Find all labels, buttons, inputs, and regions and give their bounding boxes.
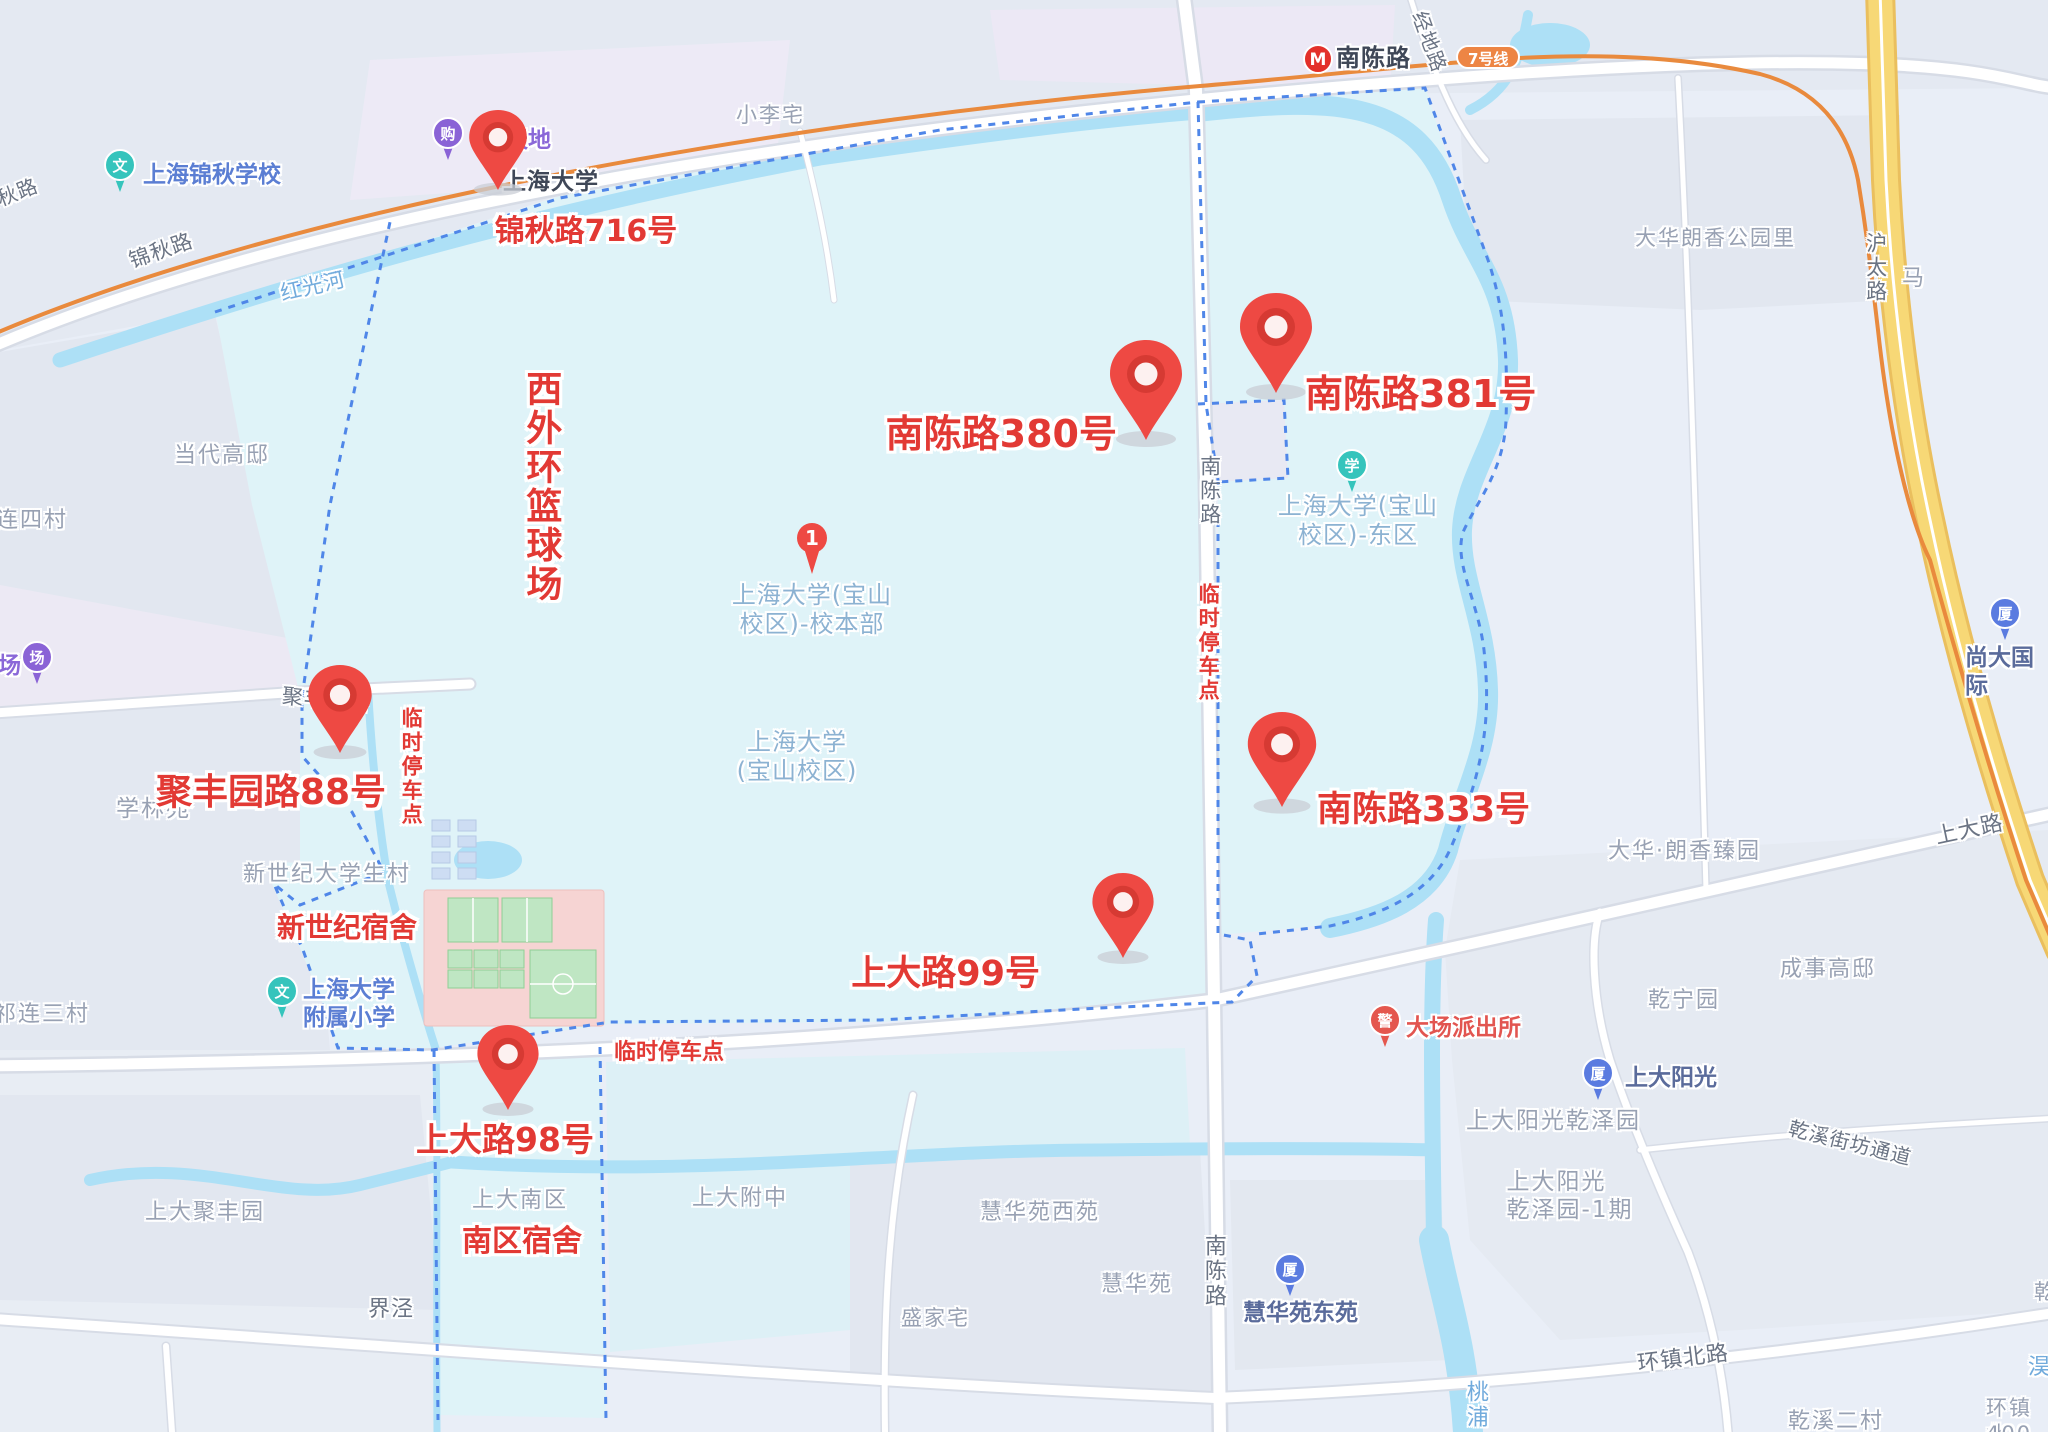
campus-east-icon[interactable]: 学 bbox=[1334, 448, 1370, 498]
map-label: 当代高邸 bbox=[174, 443, 270, 470]
police-icon[interactable]: 警 bbox=[1367, 1003, 1403, 1053]
map-label: 成事高邸 bbox=[1780, 957, 1876, 984]
svg-text:M: M bbox=[1310, 50, 1327, 70]
svg-text:场: 场 bbox=[29, 649, 44, 667]
svg-text:厦: 厦 bbox=[1997, 605, 2013, 623]
svg-text:警: 警 bbox=[1376, 1012, 1392, 1030]
sports-fields bbox=[424, 890, 604, 1026]
map-label: 盛家宅 bbox=[901, 1306, 970, 1332]
map-pin-icon[interactable] bbox=[466, 107, 530, 197]
map-label: 祁连四村 bbox=[0, 508, 68, 535]
map-label: 尚大国际 bbox=[1965, 644, 2048, 700]
metro-line-badge: 7号线 bbox=[1456, 45, 1520, 69]
svg-text:学: 学 bbox=[1344, 457, 1359, 475]
map-label: 上海大学(宝山 校区)-东区 bbox=[1278, 492, 1438, 551]
map-label: 上大阳光 bbox=[1625, 1064, 1717, 1092]
address-marker-label: 上大路98号 bbox=[416, 1113, 594, 1161]
map-label: 慧华苑东苑 bbox=[1243, 1299, 1358, 1327]
map-label: 上海大学 (宝山校区) bbox=[737, 728, 858, 787]
building-icon[interactable]: 厦 bbox=[1987, 596, 2023, 646]
map-label: 南陈路 bbox=[1196, 455, 1222, 527]
svg-text:厦: 厦 bbox=[1590, 1065, 1606, 1083]
map-label: 桃浦 bbox=[1461, 1380, 1488, 1430]
map-label: 上大聚丰园 bbox=[145, 1200, 265, 1227]
map-label: 上大阳光乾泽园 bbox=[1466, 1107, 1641, 1135]
map-label: 慧华苑 bbox=[1101, 1272, 1173, 1299]
school-icon[interactable]: 文 bbox=[264, 974, 300, 1024]
address-marker-label: 南陈路380号 bbox=[886, 403, 1117, 458]
map-label: 乾 bbox=[2034, 1280, 2048, 1306]
map-label: 界泾 bbox=[368, 1297, 414, 1324]
map-pin-icon[interactable] bbox=[474, 1022, 542, 1117]
map-pin-icon[interactable] bbox=[1244, 708, 1320, 814]
building-icon[interactable]: 厦 bbox=[1272, 1252, 1308, 1302]
map-label: 南陈路 bbox=[1199, 1234, 1226, 1309]
map-pin-icon[interactable] bbox=[305, 661, 375, 760]
map-label: 400弄 bbox=[1986, 1422, 2048, 1432]
map-label: 沪太路 bbox=[1862, 232, 1888, 304]
plaza-icon[interactable]: 场 bbox=[19, 640, 55, 690]
address-marker-label: 南陈路333号 bbox=[1317, 781, 1530, 832]
map-label: 马 bbox=[1902, 266, 1926, 293]
map-pin-icon[interactable] bbox=[1236, 289, 1316, 401]
red-annotation: 西外环篮球场 bbox=[520, 370, 561, 604]
metro-station-icon[interactable]: M bbox=[1302, 43, 1334, 79]
map-canvas[interactable]: 小李宅当代高邸祁连四村学林苑祁连三村新世纪大学生村上大南区上大附中上大聚丰园盛家… bbox=[0, 0, 2048, 1432]
map-label: 小李宅 bbox=[736, 103, 805, 129]
map-label: 祁连三村 bbox=[0, 1002, 90, 1029]
address-marker-label: 上大路99号 bbox=[851, 945, 1040, 996]
map-label: 南陈路 bbox=[1336, 44, 1411, 73]
map-label: 上大阳光 乾泽园-1期 bbox=[1507, 1168, 1634, 1224]
map-label: 大场派出所 bbox=[1406, 1014, 1521, 1042]
map-label: 上海大学 附属小学 bbox=[303, 976, 395, 1032]
map-pin-icon[interactable] bbox=[1089, 870, 1157, 965]
svg-text:购: 购 bbox=[440, 125, 455, 143]
map-label: 上大附中 bbox=[692, 1186, 788, 1213]
red-annotation: 新世纪宿舍 bbox=[277, 912, 417, 944]
red-annotation: 临时停车点 bbox=[399, 707, 423, 827]
map-label: 乾宁园 bbox=[1648, 988, 1720, 1015]
red-annotation: 临时停车点 bbox=[1196, 583, 1220, 703]
map-label: 上海大学(宝山 校区)-校本部 bbox=[732, 581, 892, 640]
map-label: 上海锦秋学校 bbox=[143, 161, 281, 189]
map-label: 场 bbox=[0, 652, 21, 680]
map-pin-icon[interactable] bbox=[1106, 336, 1186, 448]
address-marker-label: 锦秋路716号 bbox=[495, 206, 678, 250]
svg-text:文: 文 bbox=[112, 157, 128, 175]
address-marker-label: 南陈路381号 bbox=[1305, 363, 1536, 418]
building-icon[interactable]: 厦 bbox=[1580, 1056, 1616, 1106]
map-label: 乾溪二村 bbox=[1788, 1409, 1884, 1432]
shopping-icon[interactable]: 购 bbox=[430, 116, 466, 166]
map-label: 新世纪大学生村 bbox=[243, 862, 411, 889]
red-annotation: 南区宿舍 bbox=[462, 1225, 582, 1260]
marker-number: 1 bbox=[805, 526, 819, 550]
map-label: 淏 bbox=[2028, 1355, 2048, 1382]
map-label: 大华朗香公园里 bbox=[1635, 226, 1796, 252]
svg-text:厦: 厦 bbox=[1282, 1261, 1298, 1279]
school-icon[interactable]: 文 bbox=[102, 148, 138, 198]
numbered-marker-1[interactable]: 1 bbox=[792, 520, 832, 580]
address-marker-label: 聚丰园路88号 bbox=[156, 763, 386, 815]
map-label: 慧华苑西苑 bbox=[980, 1200, 1100, 1227]
map-label: 大华·朗香臻园 bbox=[1608, 839, 1761, 866]
svg-text:文: 文 bbox=[274, 983, 290, 1001]
red-annotation: 临时停车点 bbox=[614, 1040, 724, 1065]
map-label: 上大南区 bbox=[472, 1188, 568, 1215]
